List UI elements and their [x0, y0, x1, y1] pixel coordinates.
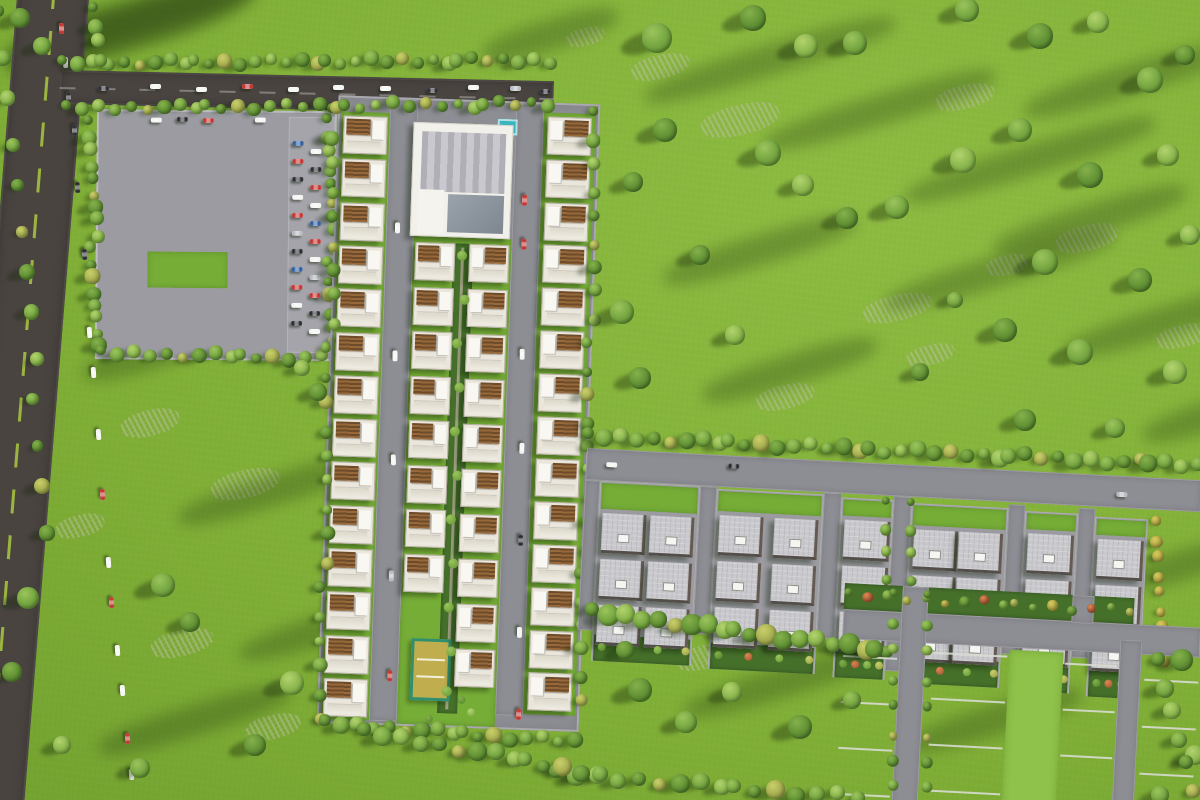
tree [633, 611, 651, 629]
tree [70, 56, 85, 71]
trees-and-hedges [0, 0, 1200, 800]
tree [610, 773, 626, 789]
tree [294, 360, 310, 376]
tree [722, 682, 742, 702]
tree [249, 55, 262, 68]
tree [632, 772, 647, 787]
tree [88, 2, 99, 13]
tree [357, 722, 370, 735]
tree [675, 711, 697, 733]
tree [454, 99, 464, 109]
tree [2, 662, 22, 682]
tree [180, 612, 200, 632]
tree [264, 100, 276, 112]
tree [544, 57, 557, 70]
tree [1157, 144, 1179, 166]
tree [266, 53, 278, 65]
tree [75, 102, 89, 116]
tree [1014, 409, 1036, 431]
tree [0, 50, 11, 67]
tree [32, 440, 43, 451]
tree [1067, 339, 1093, 365]
tree [1032, 249, 1058, 275]
tree [0, 5, 4, 16]
tree [281, 98, 292, 109]
tree [517, 752, 532, 767]
tree [452, 745, 465, 758]
tree [157, 100, 171, 114]
tree [482, 55, 494, 67]
tree [740, 5, 766, 31]
tree [865, 640, 883, 658]
tree [671, 774, 690, 793]
tree [993, 318, 1017, 342]
tree [836, 207, 858, 229]
tree [109, 104, 121, 116]
tree [1151, 652, 1164, 665]
tree [792, 174, 814, 196]
tree [247, 103, 260, 116]
tree [1179, 755, 1194, 770]
tree [148, 55, 163, 70]
tree [91, 33, 105, 47]
tree [537, 760, 550, 773]
tree [616, 641, 634, 659]
tree [628, 678, 652, 702]
tree [843, 691, 861, 709]
tree [498, 53, 509, 64]
tree [94, 54, 107, 67]
tree [553, 757, 572, 776]
tree [788, 715, 812, 739]
tree [30, 352, 44, 366]
tree [11, 179, 24, 192]
tree [725, 325, 745, 345]
tree [950, 147, 976, 173]
tree [39, 525, 54, 540]
tree [216, 104, 226, 114]
tree [420, 97, 432, 109]
tree [10, 8, 30, 28]
tree [1105, 418, 1125, 438]
tree [92, 99, 105, 112]
tree [126, 101, 137, 112]
tree [309, 383, 327, 401]
tree [403, 100, 416, 113]
tree [1171, 649, 1193, 671]
tree [773, 631, 793, 651]
tree [787, 787, 804, 800]
tree [541, 99, 555, 113]
tree [1171, 732, 1187, 748]
tree [364, 50, 379, 65]
tree [16, 226, 27, 237]
tree [188, 54, 200, 66]
tree [396, 52, 409, 65]
tree [885, 195, 909, 219]
tree [766, 780, 785, 799]
tree [1186, 784, 1199, 797]
tree [217, 53, 232, 68]
tree [650, 611, 666, 627]
tree [231, 99, 245, 113]
tree [199, 99, 210, 110]
tree [437, 101, 448, 112]
tree [623, 172, 643, 192]
tree [755, 140, 781, 166]
tree [1128, 268, 1152, 292]
tree [1008, 118, 1032, 142]
tree [413, 57, 425, 69]
tree [726, 779, 741, 794]
tree [955, 0, 979, 22]
tree [468, 742, 487, 761]
tree [843, 31, 867, 55]
tree [151, 573, 175, 597]
tree [1180, 225, 1200, 245]
tree [432, 737, 447, 752]
tree [1087, 11, 1109, 33]
tree [61, 100, 71, 110]
tree [809, 786, 825, 800]
tree [313, 97, 327, 111]
tree [476, 98, 489, 111]
tree [280, 671, 304, 695]
tree [1027, 23, 1053, 49]
tree [1151, 786, 1169, 800]
tree [511, 55, 526, 70]
tree [17, 587, 39, 609]
tree [748, 785, 761, 798]
tree [130, 758, 150, 778]
tree [1163, 702, 1180, 719]
tree [493, 95, 505, 107]
tree [380, 55, 394, 69]
tree [642, 23, 672, 53]
tree [592, 766, 608, 782]
tree [449, 53, 463, 67]
tree [34, 478, 51, 495]
tree [610, 300, 634, 324]
tree [653, 118, 677, 142]
tree [830, 785, 845, 800]
tree [0, 90, 15, 105]
tree [808, 630, 824, 646]
tree [233, 58, 247, 72]
tree [1077, 162, 1103, 188]
tree [26, 393, 39, 406]
tree [1156, 679, 1175, 698]
tree [1175, 45, 1195, 65]
tree [33, 37, 51, 55]
tree [690, 245, 710, 265]
tree [174, 98, 187, 111]
tree [373, 727, 392, 746]
tree [335, 58, 347, 70]
tree [1163, 360, 1187, 384]
tree [487, 743, 504, 760]
tree [19, 264, 36, 281]
tree [791, 630, 809, 648]
tree [338, 99, 350, 111]
tree [692, 773, 709, 790]
tree [947, 292, 963, 308]
tree [53, 736, 71, 754]
tree [135, 60, 146, 71]
tree [413, 736, 429, 752]
tree [119, 56, 131, 68]
tree [851, 791, 864, 800]
tree [1137, 67, 1163, 93]
tree [386, 95, 400, 109]
tree [510, 100, 521, 111]
site-plan-render: I [0, 0, 1200, 800]
tree [355, 103, 366, 114]
tree [351, 56, 362, 67]
tree [24, 304, 39, 319]
tree [794, 34, 818, 58]
tree [6, 138, 20, 152]
tree [629, 367, 651, 389]
tree [298, 102, 308, 112]
tree [244, 734, 266, 756]
tree [911, 363, 929, 381]
